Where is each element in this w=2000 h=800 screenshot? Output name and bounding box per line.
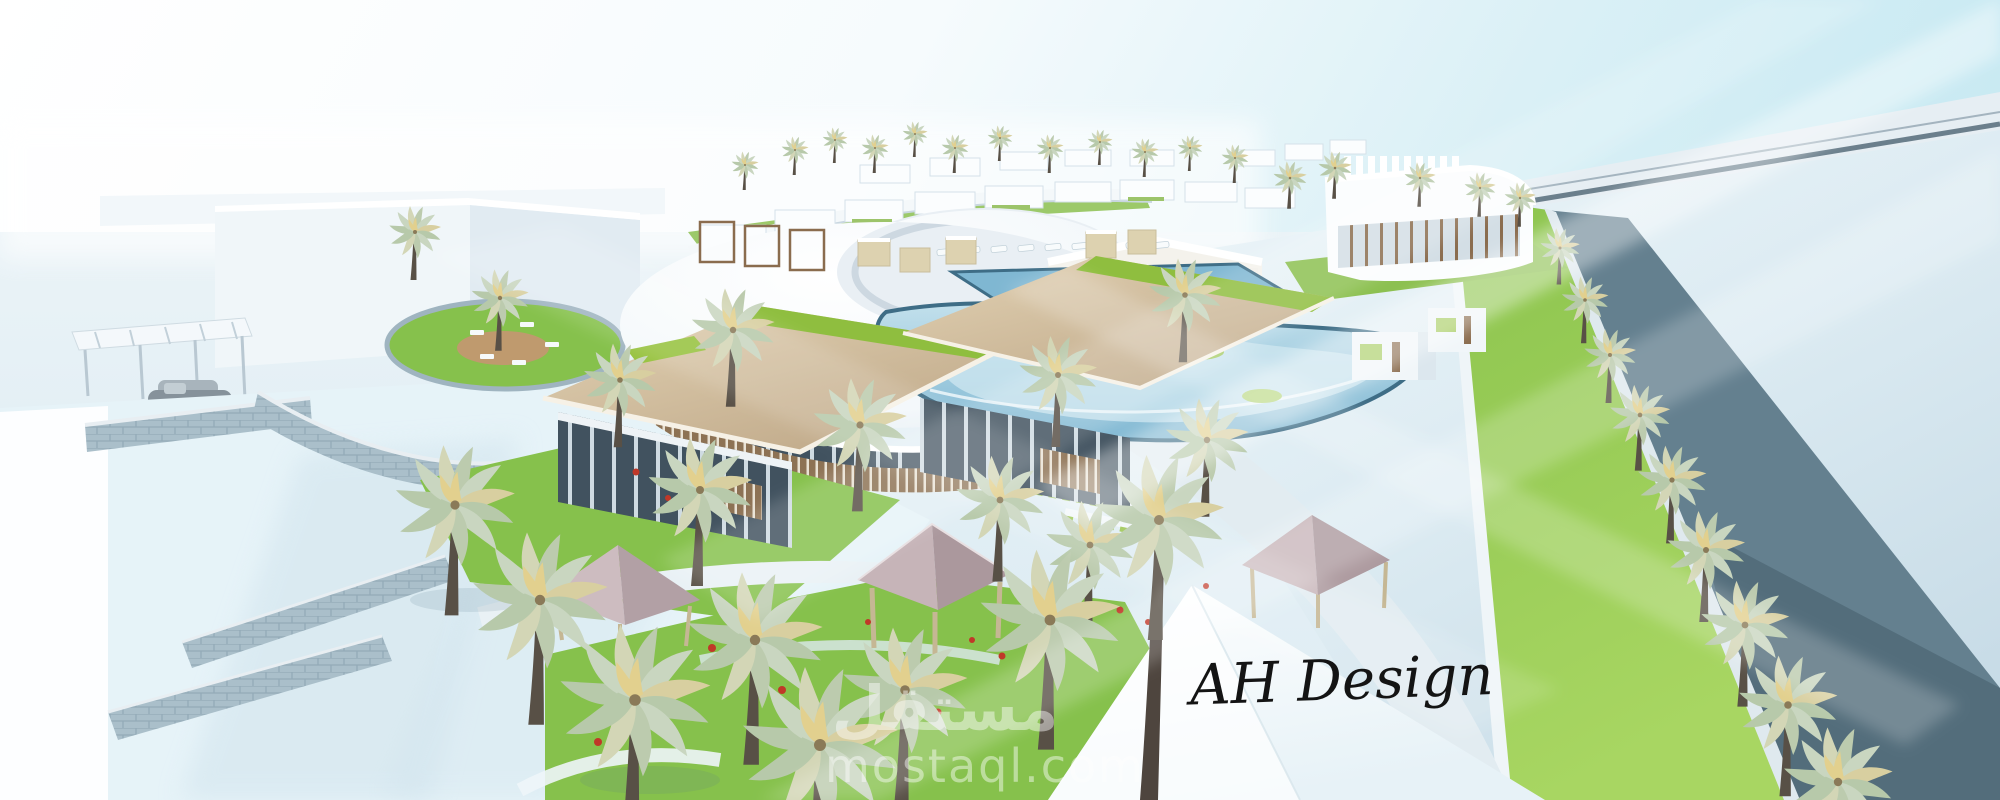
resort-render: مستقل mostaql.com AH Design — [0, 0, 2000, 800]
watermark-domain: mostaql.com — [825, 739, 1145, 793]
white-foreground-strip — [0, 406, 108, 800]
signature-text: AH Design — [1184, 643, 1495, 719]
watermark-arabic: مستقل — [832, 672, 1059, 745]
